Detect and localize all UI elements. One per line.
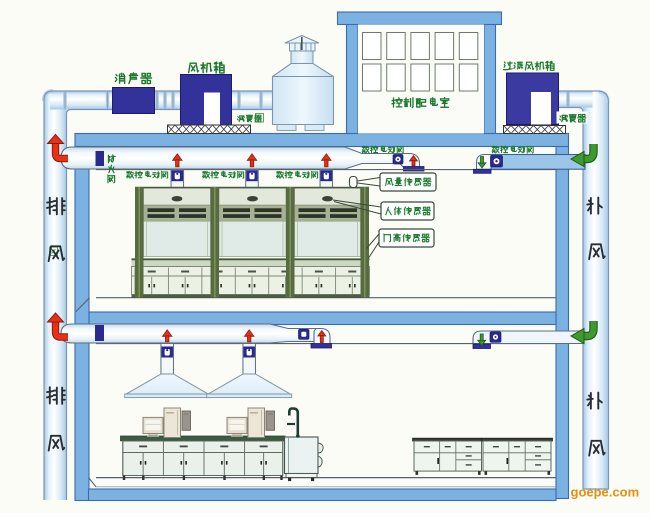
svg-text:goepe.com: goepe.com — [571, 485, 640, 500]
